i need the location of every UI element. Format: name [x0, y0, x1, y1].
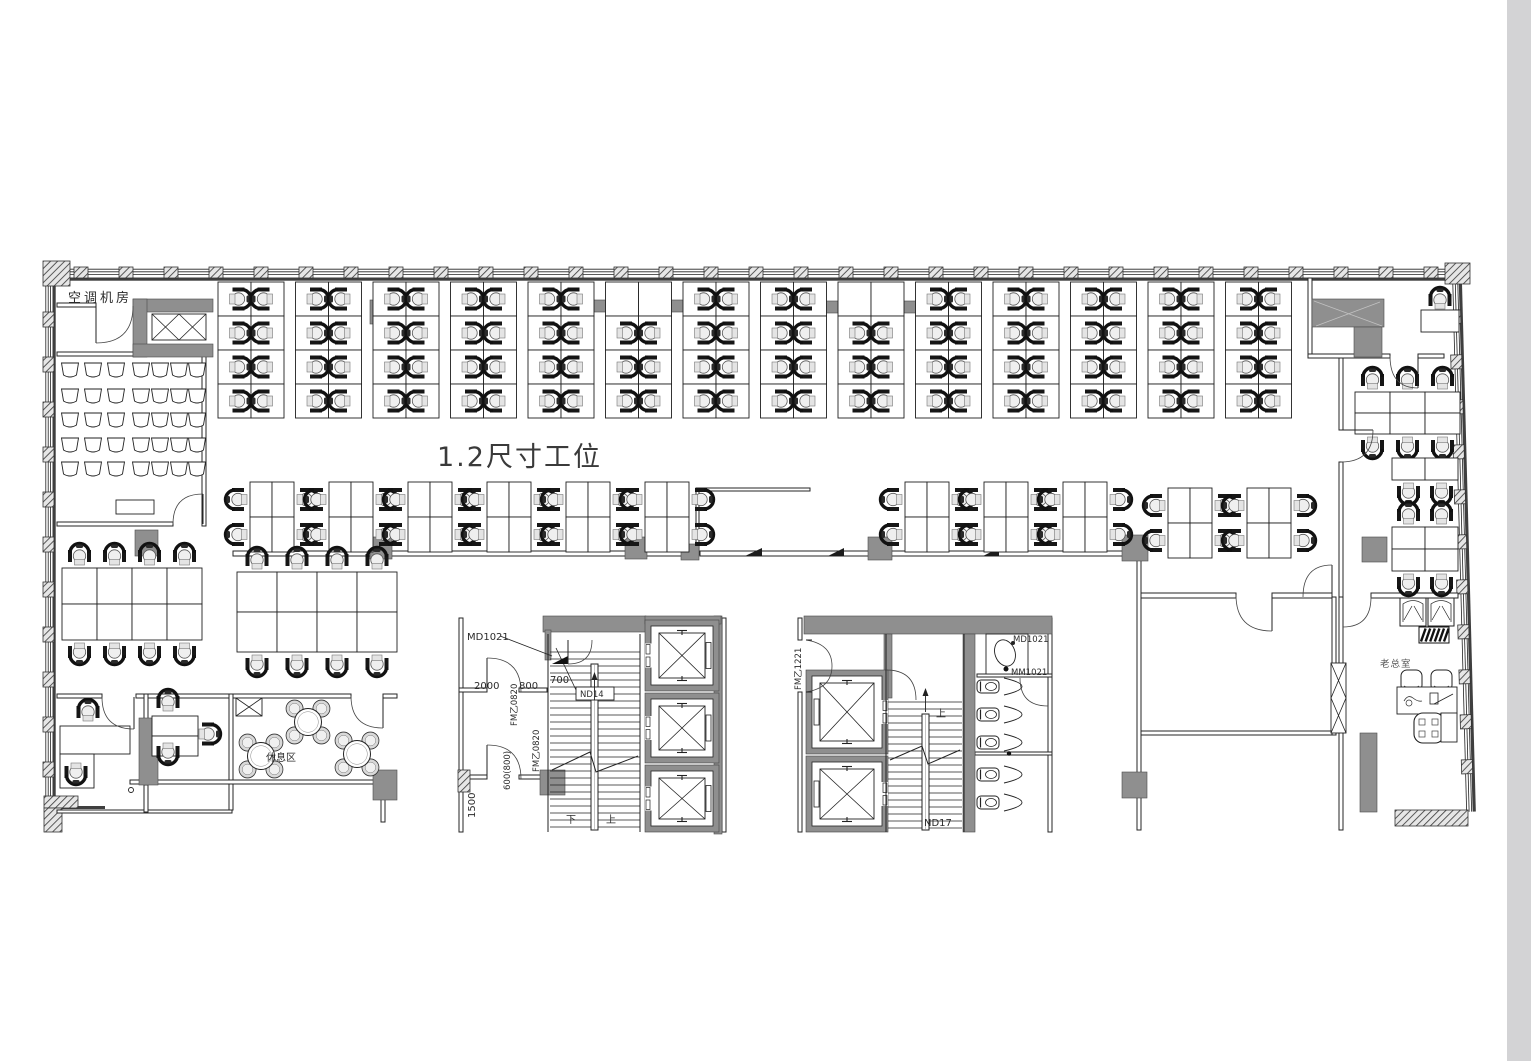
core1-fire-door-lower: FM乙0820: [532, 730, 542, 772]
label-boss-office: 老总室: [1380, 658, 1412, 670]
core1-up: 上: [606, 814, 616, 826]
core1-dim-1500: 1500: [467, 793, 478, 818]
core2-fire-door: FM乙1221: [794, 648, 804, 690]
core1-door-tag: MD1021: [467, 632, 509, 643]
label-workstation-area: 1.2尺寸工位: [437, 442, 602, 473]
right-edge-strip: [1507, 0, 1531, 1061]
core1-dim-700: 700: [550, 675, 569, 686]
core2-access-tag: MM1021: [1011, 668, 1047, 678]
core1-fire-door-upper: FM乙0820: [510, 684, 520, 726]
core2-up: 上: [936, 708, 946, 720]
core1-down: 下: [566, 815, 576, 826]
label-rest-area: 休息区: [266, 751, 296, 764]
core2-stair-tag: ND17: [924, 818, 952, 829]
floor-plan-canvas: 空调机房 1.2尺寸工位 休息区 老总室 MD1021 2000 800 700…: [0, 0, 1531, 1061]
label-ac-room: 空调机房: [68, 290, 132, 306]
core2-door-tag: MD1021: [1013, 635, 1049, 645]
core1-stair-tag: ND14: [580, 690, 604, 700]
core1-dim-600-800: 600(800): [503, 751, 513, 790]
core1-dim-2000: 2000: [474, 681, 499, 692]
core1-dim-800: 800: [519, 681, 538, 692]
floor-plan-page: 空调机房 1.2尺寸工位 休息区 老总室 MD1021 2000 800 700…: [0, 0, 1531, 1061]
